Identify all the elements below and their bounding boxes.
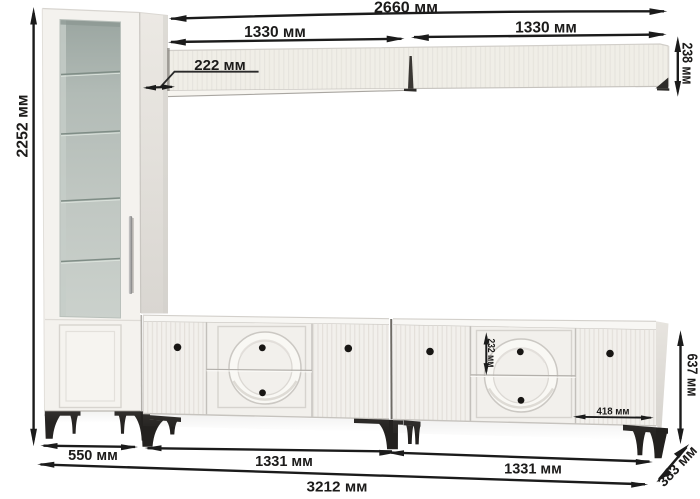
- svg-text:550 мм: 550 мм: [68, 448, 118, 464]
- svg-text:418 мм: 418 мм: [597, 405, 630, 417]
- svg-text:1330 мм: 1330 мм: [244, 24, 306, 41]
- svg-text:3212 мм: 3212 мм: [307, 480, 368, 496]
- svg-text:637 мм: 637 мм: [684, 354, 700, 397]
- svg-text:232 мм: 232 мм: [485, 339, 496, 368]
- svg-text:2660 мм: 2660 мм: [374, 0, 438, 16]
- svg-text:238 мм: 238 мм: [679, 43, 695, 85]
- svg-text:2252 мм: 2252 мм: [15, 95, 32, 158]
- svg-text:1330 мм: 1330 мм: [515, 20, 577, 37]
- svg-text:1331 мм: 1331 мм: [504, 461, 562, 477]
- svg-text:1331 мм: 1331 мм: [255, 454, 313, 470]
